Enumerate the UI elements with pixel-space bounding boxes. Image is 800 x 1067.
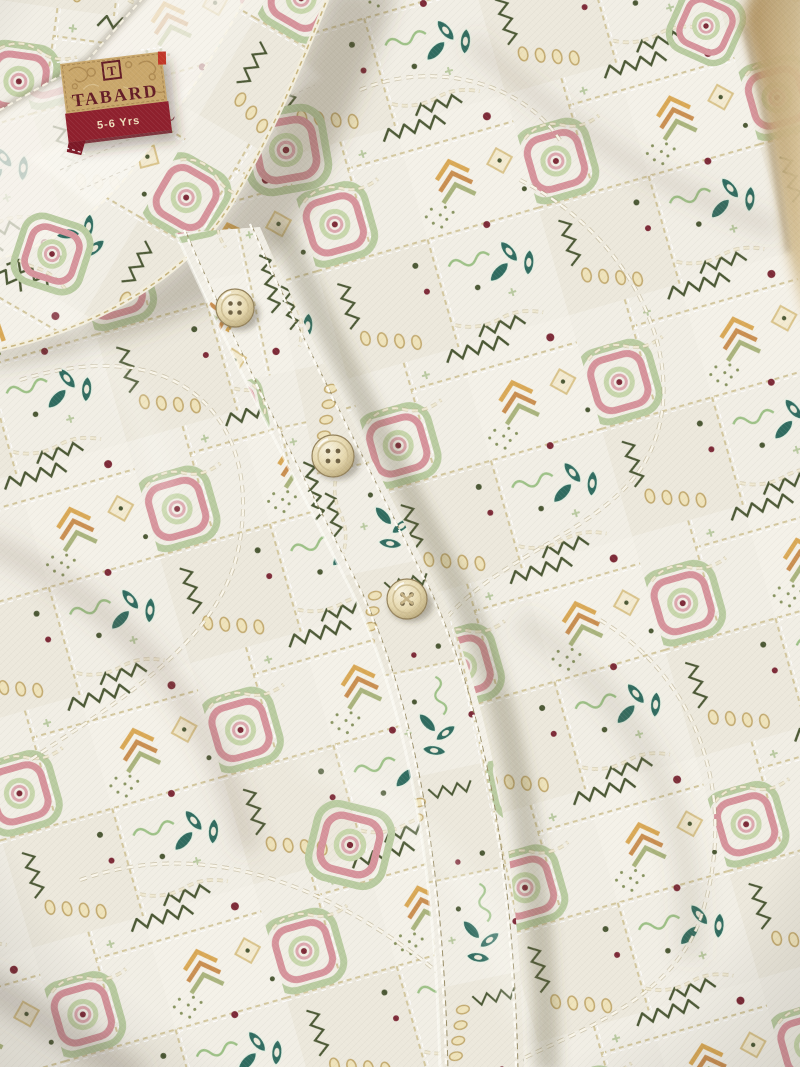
vignette <box>0 0 800 1067</box>
photo: T TABARD 5-6 Yrs <box>0 0 800 1067</box>
